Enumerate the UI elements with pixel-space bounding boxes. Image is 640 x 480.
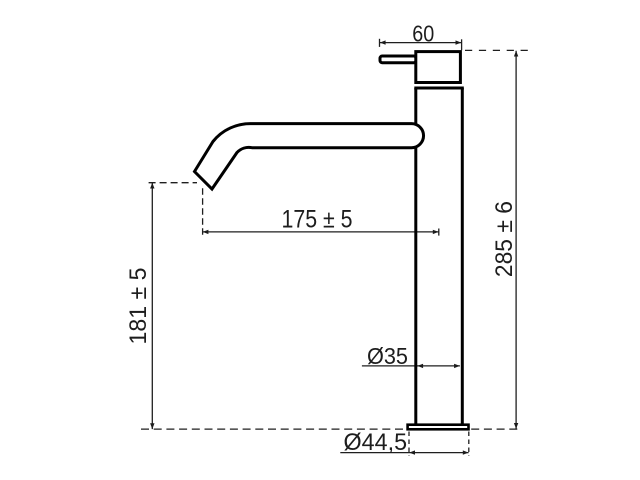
svg-text:285 ± 6: 285 ± 6 [491, 201, 518, 277]
svg-text:181 ± 5: 181 ± 5 [125, 268, 152, 345]
svg-text:60: 60 [412, 20, 434, 46]
svg-text:Ø35: Ø35 [367, 343, 408, 369]
svg-text:175 ± 5: 175 ± 5 [282, 206, 353, 233]
svg-text:Ø44,5: Ø44,5 [344, 429, 408, 456]
